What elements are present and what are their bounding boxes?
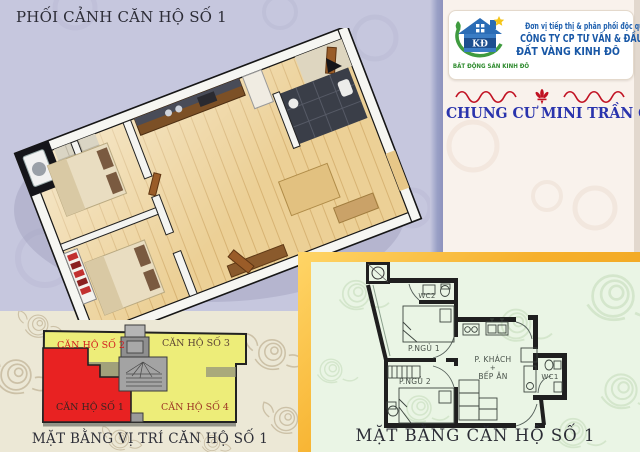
floor-plan-panel: WC2 P.NGỦ 1 P.NGỦ 2 P. KHÁCH + BẾP ĂN WC… <box>298 252 640 452</box>
location-plan: CĂN HỘ SỐ 2 CĂN HỘ SỐ 3 CĂN HỘ SỐ 1 CĂN … <box>30 318 260 430</box>
floor-plan-canvas: WC2 P.NGỦ 1 P.NGỦ 2 P. KHÁCH + BẾP ĂN WC… <box>311 262 640 452</box>
brand-company-line2: ĐẤT VÀNG KINH ĐÔ <box>511 46 624 58</box>
room-label-bedroom1: P.NGỦ 1 <box>408 343 440 353</box>
unit-label: CĂN HỘ SỐ 4 <box>161 400 229 413</box>
unit-label: CĂN HỘ SỐ 3 <box>162 336 230 349</box>
ornament-divider <box>452 88 632 106</box>
room-label-living: P. KHÁCH <box>475 355 512 364</box>
perspective-title: PHỐI CẢNH CĂN HỘ SỐ 1 <box>16 8 236 26</box>
logo-caption: BẤT ĐỘNG SẢN KINH ĐÔ <box>452 63 529 70</box>
brand-company-line1: CÔNG TY CP TƯ VẤN & ĐẦU TƯ <box>520 33 616 45</box>
room-label-kitchen: BẾP ĂN <box>478 371 507 381</box>
apartment-2d-plan: WC2 P.NGỦ 1 P.NGỦ 2 P. KHÁCH + BẾP ĂN WC… <box>311 262 640 428</box>
project-title: CHUNG CƯ MINI TRẦN CUNG <box>446 105 637 122</box>
room-label-wc1: WC1 <box>541 373 558 381</box>
logo-monogram: KĐ <box>472 40 488 50</box>
room-label-bedroom2: P.NGỦ 2 <box>399 376 431 386</box>
room-label-wc2: WC2 <box>418 292 435 300</box>
kinh-do-logo-icon: KĐ <box>452 15 508 63</box>
unit-label: CĂN HỘ SỐ 2 <box>57 338 125 351</box>
brand-text-block: Đơn vị tiếp thị & phân phối độc quyền CÔ… <box>505 22 631 58</box>
brand-card: KĐ BẤT ĐỘNG SẢN KINH ĐÔ Đơn vị tiếp thị … <box>448 10 634 80</box>
room-label-plus: + <box>490 364 496 372</box>
unit-label-highlighted: CĂN HỘ SỐ 1 <box>56 400 124 413</box>
brand-tagline: Đơn vị tiếp thị & phân phối độc quyền <box>525 22 611 32</box>
location-plan-caption: MẶT BẰNG VỊ TRÍ CĂN HỘ SỐ 1 <box>20 431 280 447</box>
fleur-de-lis-icon <box>535 89 550 104</box>
floor-plan-caption: MẶT BẰNG CĂN HỘ SỐ 1 <box>311 426 640 445</box>
